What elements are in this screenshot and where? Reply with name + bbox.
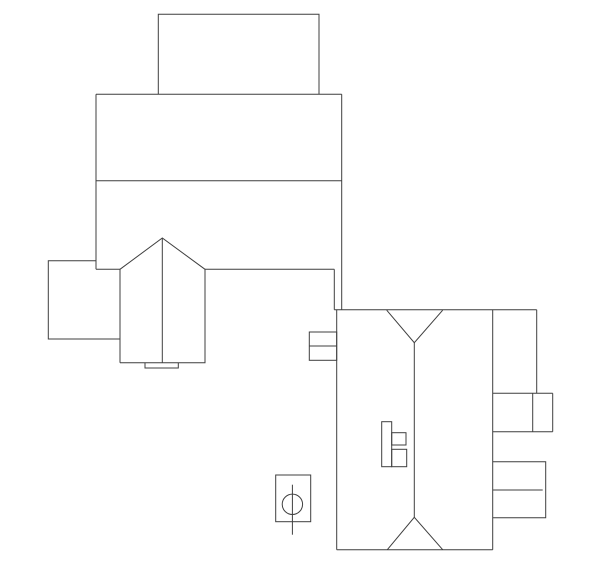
left-annex-outline [48,261,120,339]
interior-stair-upper-step [392,433,406,445]
upper-annex-rect-outline [158,14,319,94]
interior-stair-lower-step [392,449,407,466]
cad-canvas [0,0,600,569]
interior-stair-bar [382,422,392,467]
floor-plan-drawing [0,0,600,569]
lower-building-top-hip-valley [387,310,443,343]
gable-wing-bottom-tab [145,363,178,368]
lower-building-bottom-hip-valley [387,517,442,549]
